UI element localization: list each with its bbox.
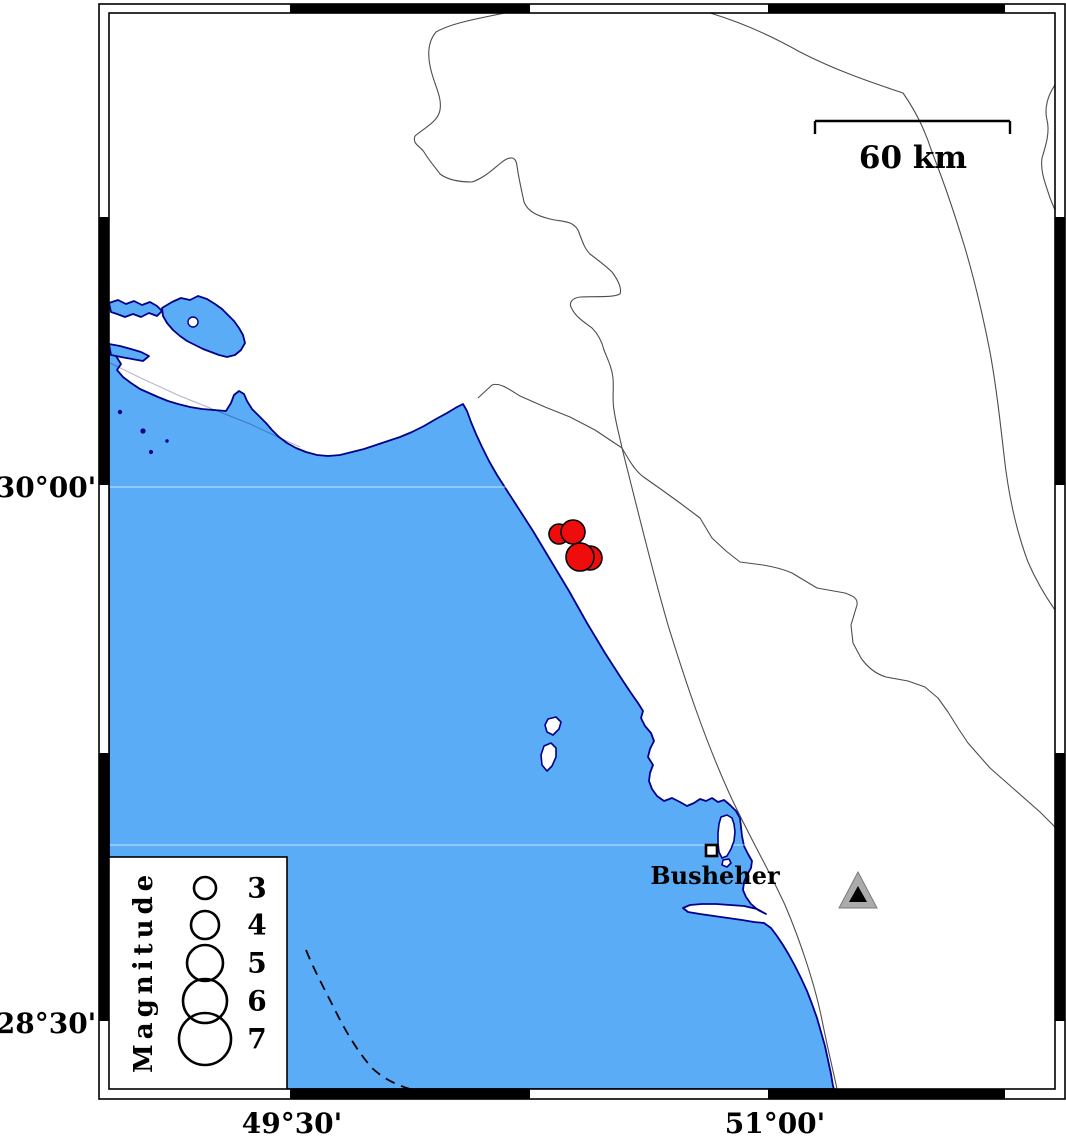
map-figure: Busheher 60 km Magnitude 3 4 5 6 7 [0,0,1066,1143]
city-marker-square[interactable] [706,845,717,856]
lon-label-5100: 51°00' [725,1107,826,1140]
legend-value: 6 [247,985,266,1018]
legend-value: 3 [247,872,266,905]
legend-value: 7 [247,1023,266,1056]
earthquake-marker[interactable] [561,520,585,544]
earthquake-marker[interactable] [566,543,594,571]
lat-label-30: 30°00' [0,471,96,504]
legend-value: 4 [247,909,266,942]
map-canvas: Busheher 60 km Magnitude 3 4 5 6 7 [107,13,1055,1094]
legend-title: Magnitude [129,870,159,1073]
magnitude-legend: Magnitude 3 4 5 6 7 [107,857,287,1090]
legend-value: 5 [247,947,266,980]
lat-label-2830: 28°30' [0,1007,96,1040]
city-label: Busheher [650,861,780,890]
scale-bar-label: 60 km [859,140,967,176]
lon-label-4930: 49°30' [242,1107,343,1140]
